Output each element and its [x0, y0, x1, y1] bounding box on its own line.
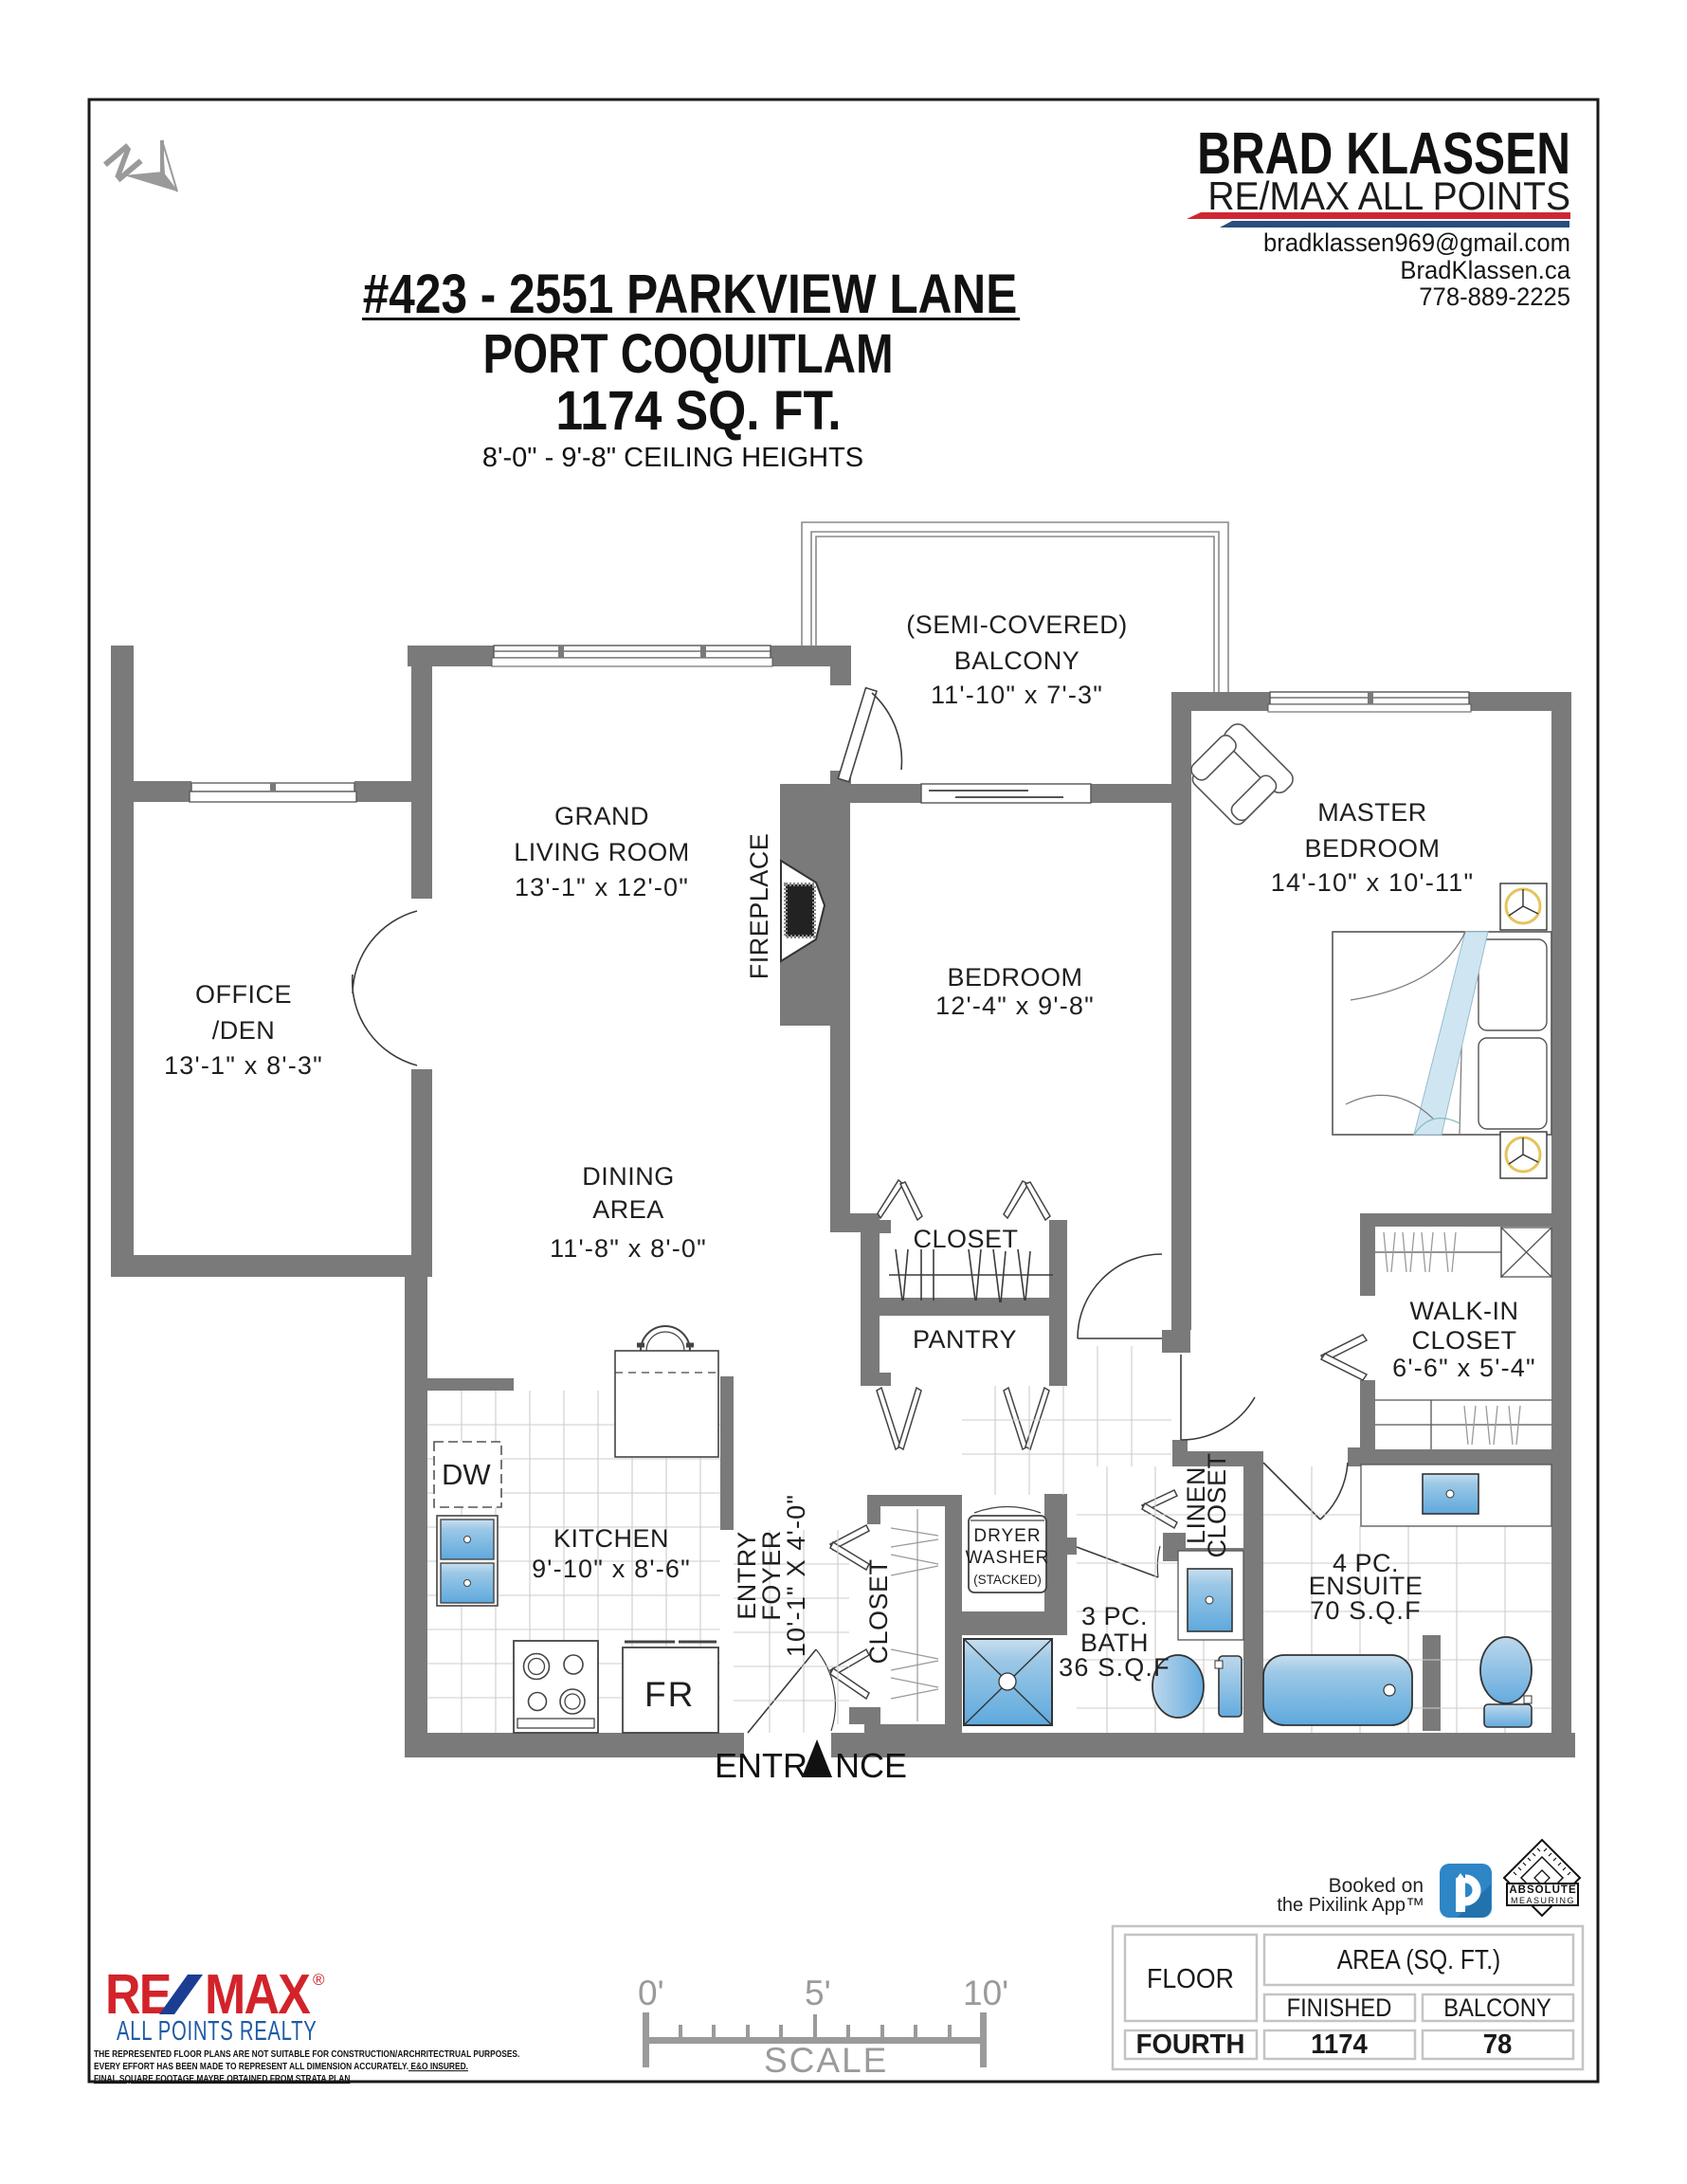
svg-text:bradklassen969@gmail.com: bradklassen969@gmail.com: [1263, 227, 1570, 257]
svg-text:0': 0': [638, 1974, 664, 2012]
svg-text:1174: 1174: [1311, 2028, 1368, 2059]
svg-text:BEDROOM: BEDROOM: [947, 963, 1082, 992]
svg-text:CLOSET: CLOSET: [1411, 1326, 1516, 1355]
svg-text:78: 78: [1483, 2028, 1513, 2059]
svg-text:11'-10" x 7'-3": 11'-10" x 7'-3": [931, 681, 1103, 709]
svg-text:ALL POINTS REALTY: ALL POINTS REALTY: [117, 2016, 317, 2047]
svg-text:13'-1" x 12'-0": 13'-1" x 12'-0": [515, 873, 689, 901]
svg-text:FR: FR: [644, 1675, 695, 1714]
svg-text:36 S.Q.F: 36 S.Q.F: [1059, 1653, 1170, 1682]
svg-text:BALCONY: BALCONY: [1443, 1994, 1551, 2023]
svg-text:12'-4" x 9'-8": 12'-4" x 9'-8": [935, 992, 1095, 1020]
svg-text:SCALE: SCALE: [764, 2041, 888, 2080]
svg-text:9'-10" x 8'-6": 9'-10" x 8'-6": [532, 1555, 691, 1583]
svg-text:EVERY EFFORT HAS BEEN MADE TO: EVERY EFFORT HAS BEEN MADE TO REPRESENT …: [94, 2061, 468, 2072]
svg-text:(STACKED): (STACKED): [973, 1573, 1042, 1587]
svg-text:10': 10': [963, 1974, 1008, 2012]
svg-text:BALCONY: BALCONY: [954, 646, 1080, 675]
svg-text:FIREPLACE: FIREPLACE: [745, 833, 773, 980]
svg-text:BradKlassen.ca: BradKlassen.ca: [1400, 255, 1570, 284]
svg-text:WALK-IN: WALK-IN: [1409, 1297, 1518, 1325]
svg-text:PANTRY: PANTRY: [913, 1325, 1017, 1354]
svg-text:CLOSET: CLOSET: [864, 1558, 893, 1664]
svg-text:KITCHEN: KITCHEN: [553, 1524, 669, 1553]
svg-text:10'-1" X 4'-0": 10'-1" X 4'-0": [782, 1494, 810, 1657]
svg-text:1174 SQ. FT.: 1174 SQ. FT.: [555, 379, 841, 441]
svg-text:#423 - 2551 PARKVIEW LANE: #423 - 2551 PARKVIEW LANE: [363, 264, 1018, 324]
svg-text:DRYER: DRYER: [973, 1526, 1041, 1546]
svg-text:THE REPRESENTED FLOOR PLANS AR: THE REPRESENTED FLOOR PLANS ARE NOT SUIT…: [94, 2048, 519, 2060]
svg-text:BEDROOM: BEDROOM: [1304, 834, 1440, 863]
svg-text:FINISHED: FINISHED: [1287, 1994, 1392, 2023]
svg-text:ENTR: ENTR: [715, 1746, 807, 1785]
svg-text:8'-0" - 9'-8" CEILING HEIGHTS: 8'-0" - 9'-8" CEILING HEIGHTS: [482, 443, 863, 473]
svg-text:(SEMI-COVERED): (SEMI-COVERED): [906, 610, 1128, 639]
svg-text:ABSOLUTE: ABSOLUTE: [1509, 1884, 1576, 1896]
svg-text:DINING: DINING: [582, 1162, 675, 1191]
svg-text:®: ®: [313, 1971, 325, 1989]
svg-text:3 PC.: 3 PC.: [1081, 1602, 1148, 1630]
svg-text:FINAL SQUARE FOOTAGE MAYBE OBT: FINAL SQUARE FOOTAGE MAYBE OBTAINED FROM…: [94, 2073, 351, 2084]
svg-text:CLOSET: CLOSET: [1203, 1452, 1231, 1557]
svg-text:DW: DW: [442, 1458, 491, 1491]
svg-text:AREA (SQ. FT.): AREA (SQ. FT.): [1337, 1944, 1501, 1975]
svg-text:6'-6" x 5'-4": 6'-6" x 5'-4": [1392, 1354, 1536, 1382]
svg-text:the Pixilink App™: the Pixilink App™: [1277, 1895, 1424, 1916]
svg-text:RE/MAX ALL POINTS: RE/MAX ALL POINTS: [1207, 173, 1570, 219]
svg-text:FLOOR: FLOOR: [1147, 1963, 1234, 1993]
svg-text:CLOSET: CLOSET: [913, 1225, 1018, 1253]
svg-text:PORT COQUITLAM: PORT COQUITLAM: [482, 324, 893, 386]
svg-text:13'-1" x 8'-3": 13'-1" x 8'-3": [164, 1051, 323, 1080]
svg-text:OFFICE: OFFICE: [195, 980, 292, 1009]
svg-text:11'-8" x 8'-0": 11'-8" x 8'-0": [550, 1234, 707, 1263]
svg-text:5': 5': [805, 1974, 831, 2012]
svg-text:MEASURING: MEASURING: [1511, 1896, 1575, 1905]
svg-text:LIVING ROOM: LIVING ROOM: [514, 838, 690, 866]
svg-text:Booked on: Booked on: [1329, 1875, 1424, 1897]
svg-text:GRAND: GRAND: [554, 802, 649, 830]
svg-text:MASTER: MASTER: [1317, 798, 1427, 827]
svg-text:AREA: AREA: [592, 1195, 664, 1224]
svg-text:FOURTH: FOURTH: [1136, 2028, 1245, 2059]
svg-text:NCE: NCE: [835, 1746, 907, 1785]
svg-text:778-889-2225: 778-889-2225: [1419, 282, 1570, 311]
svg-text:WASHER: WASHER: [966, 1548, 1050, 1568]
svg-text:70 S.Q.F: 70 S.Q.F: [1310, 1596, 1422, 1625]
svg-text:/DEN: /DEN: [212, 1016, 276, 1045]
svg-text:14'-10" x 10'-11": 14'-10" x 10'-11": [1271, 868, 1475, 897]
